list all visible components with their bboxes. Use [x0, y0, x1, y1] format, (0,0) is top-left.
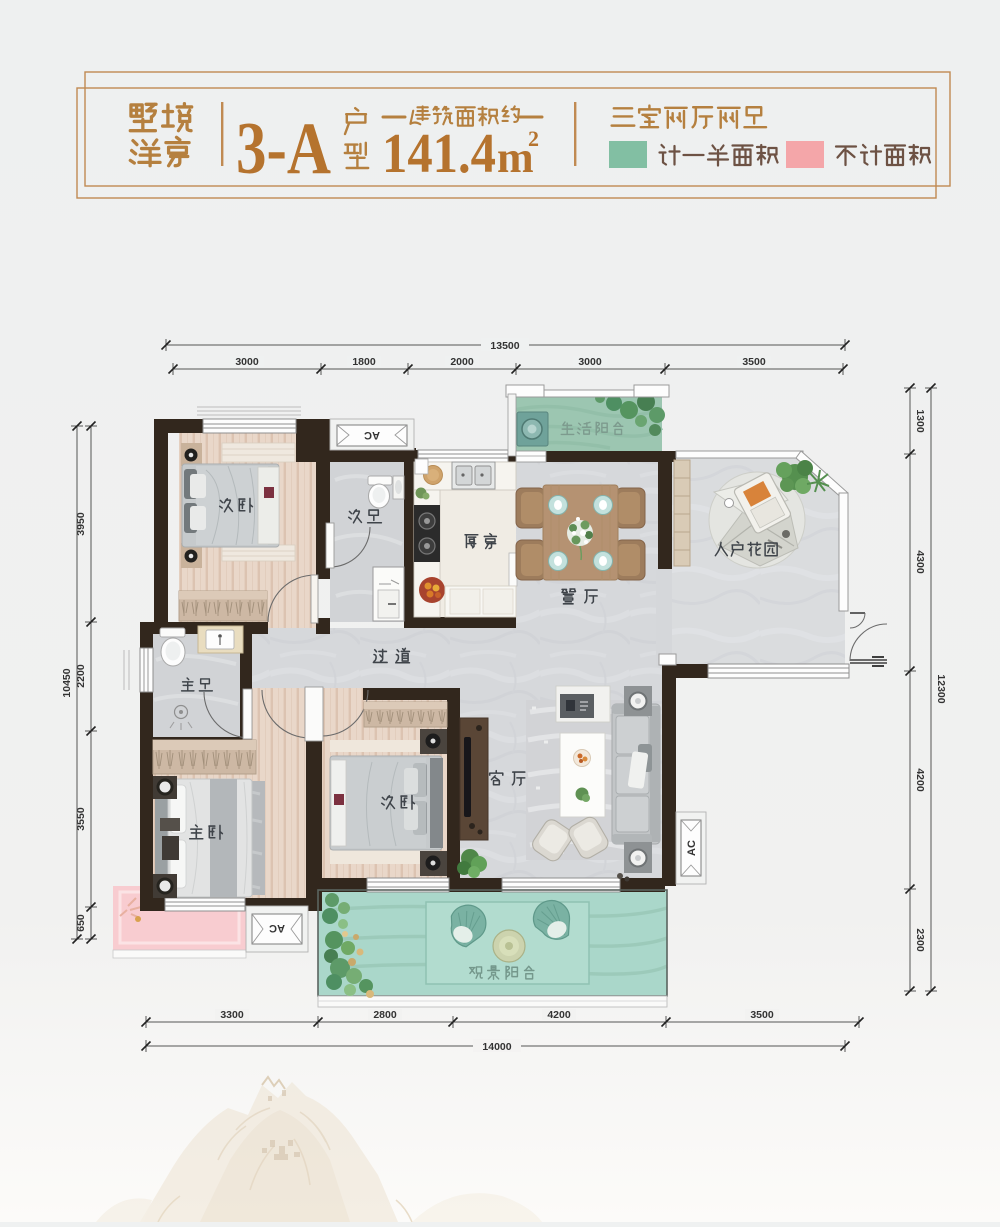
svg-text:13500: 13500 [490, 340, 519, 352]
svg-text:2300: 2300 [914, 928, 926, 952]
svg-text:2: 2 [528, 126, 539, 151]
svg-text:10450: 10450 [61, 668, 73, 697]
svg-text:4300: 4300 [914, 550, 926, 574]
svg-text:3500: 3500 [742, 356, 766, 368]
svg-text:141.4: 141.4 [382, 123, 496, 185]
svg-text:12300: 12300 [935, 674, 947, 703]
svg-text:3300: 3300 [220, 1009, 244, 1021]
svg-text:2800: 2800 [373, 1009, 397, 1021]
svg-text:AC: AC [269, 922, 285, 934]
svg-text:4200: 4200 [914, 768, 926, 792]
svg-text:2000: 2000 [450, 356, 474, 368]
svg-text:AC: AC [686, 840, 698, 856]
svg-text:3500: 3500 [750, 1009, 774, 1021]
svg-text:1300: 1300 [914, 409, 926, 433]
svg-text:3-A: 3-A [236, 108, 331, 190]
svg-text:3000: 3000 [578, 356, 602, 368]
svg-text:14000: 14000 [482, 1041, 511, 1053]
svg-text:1800: 1800 [352, 356, 376, 368]
svg-text:3000: 3000 [235, 356, 259, 368]
svg-text:AC: AC [364, 429, 380, 441]
svg-text:4200: 4200 [547, 1009, 571, 1021]
